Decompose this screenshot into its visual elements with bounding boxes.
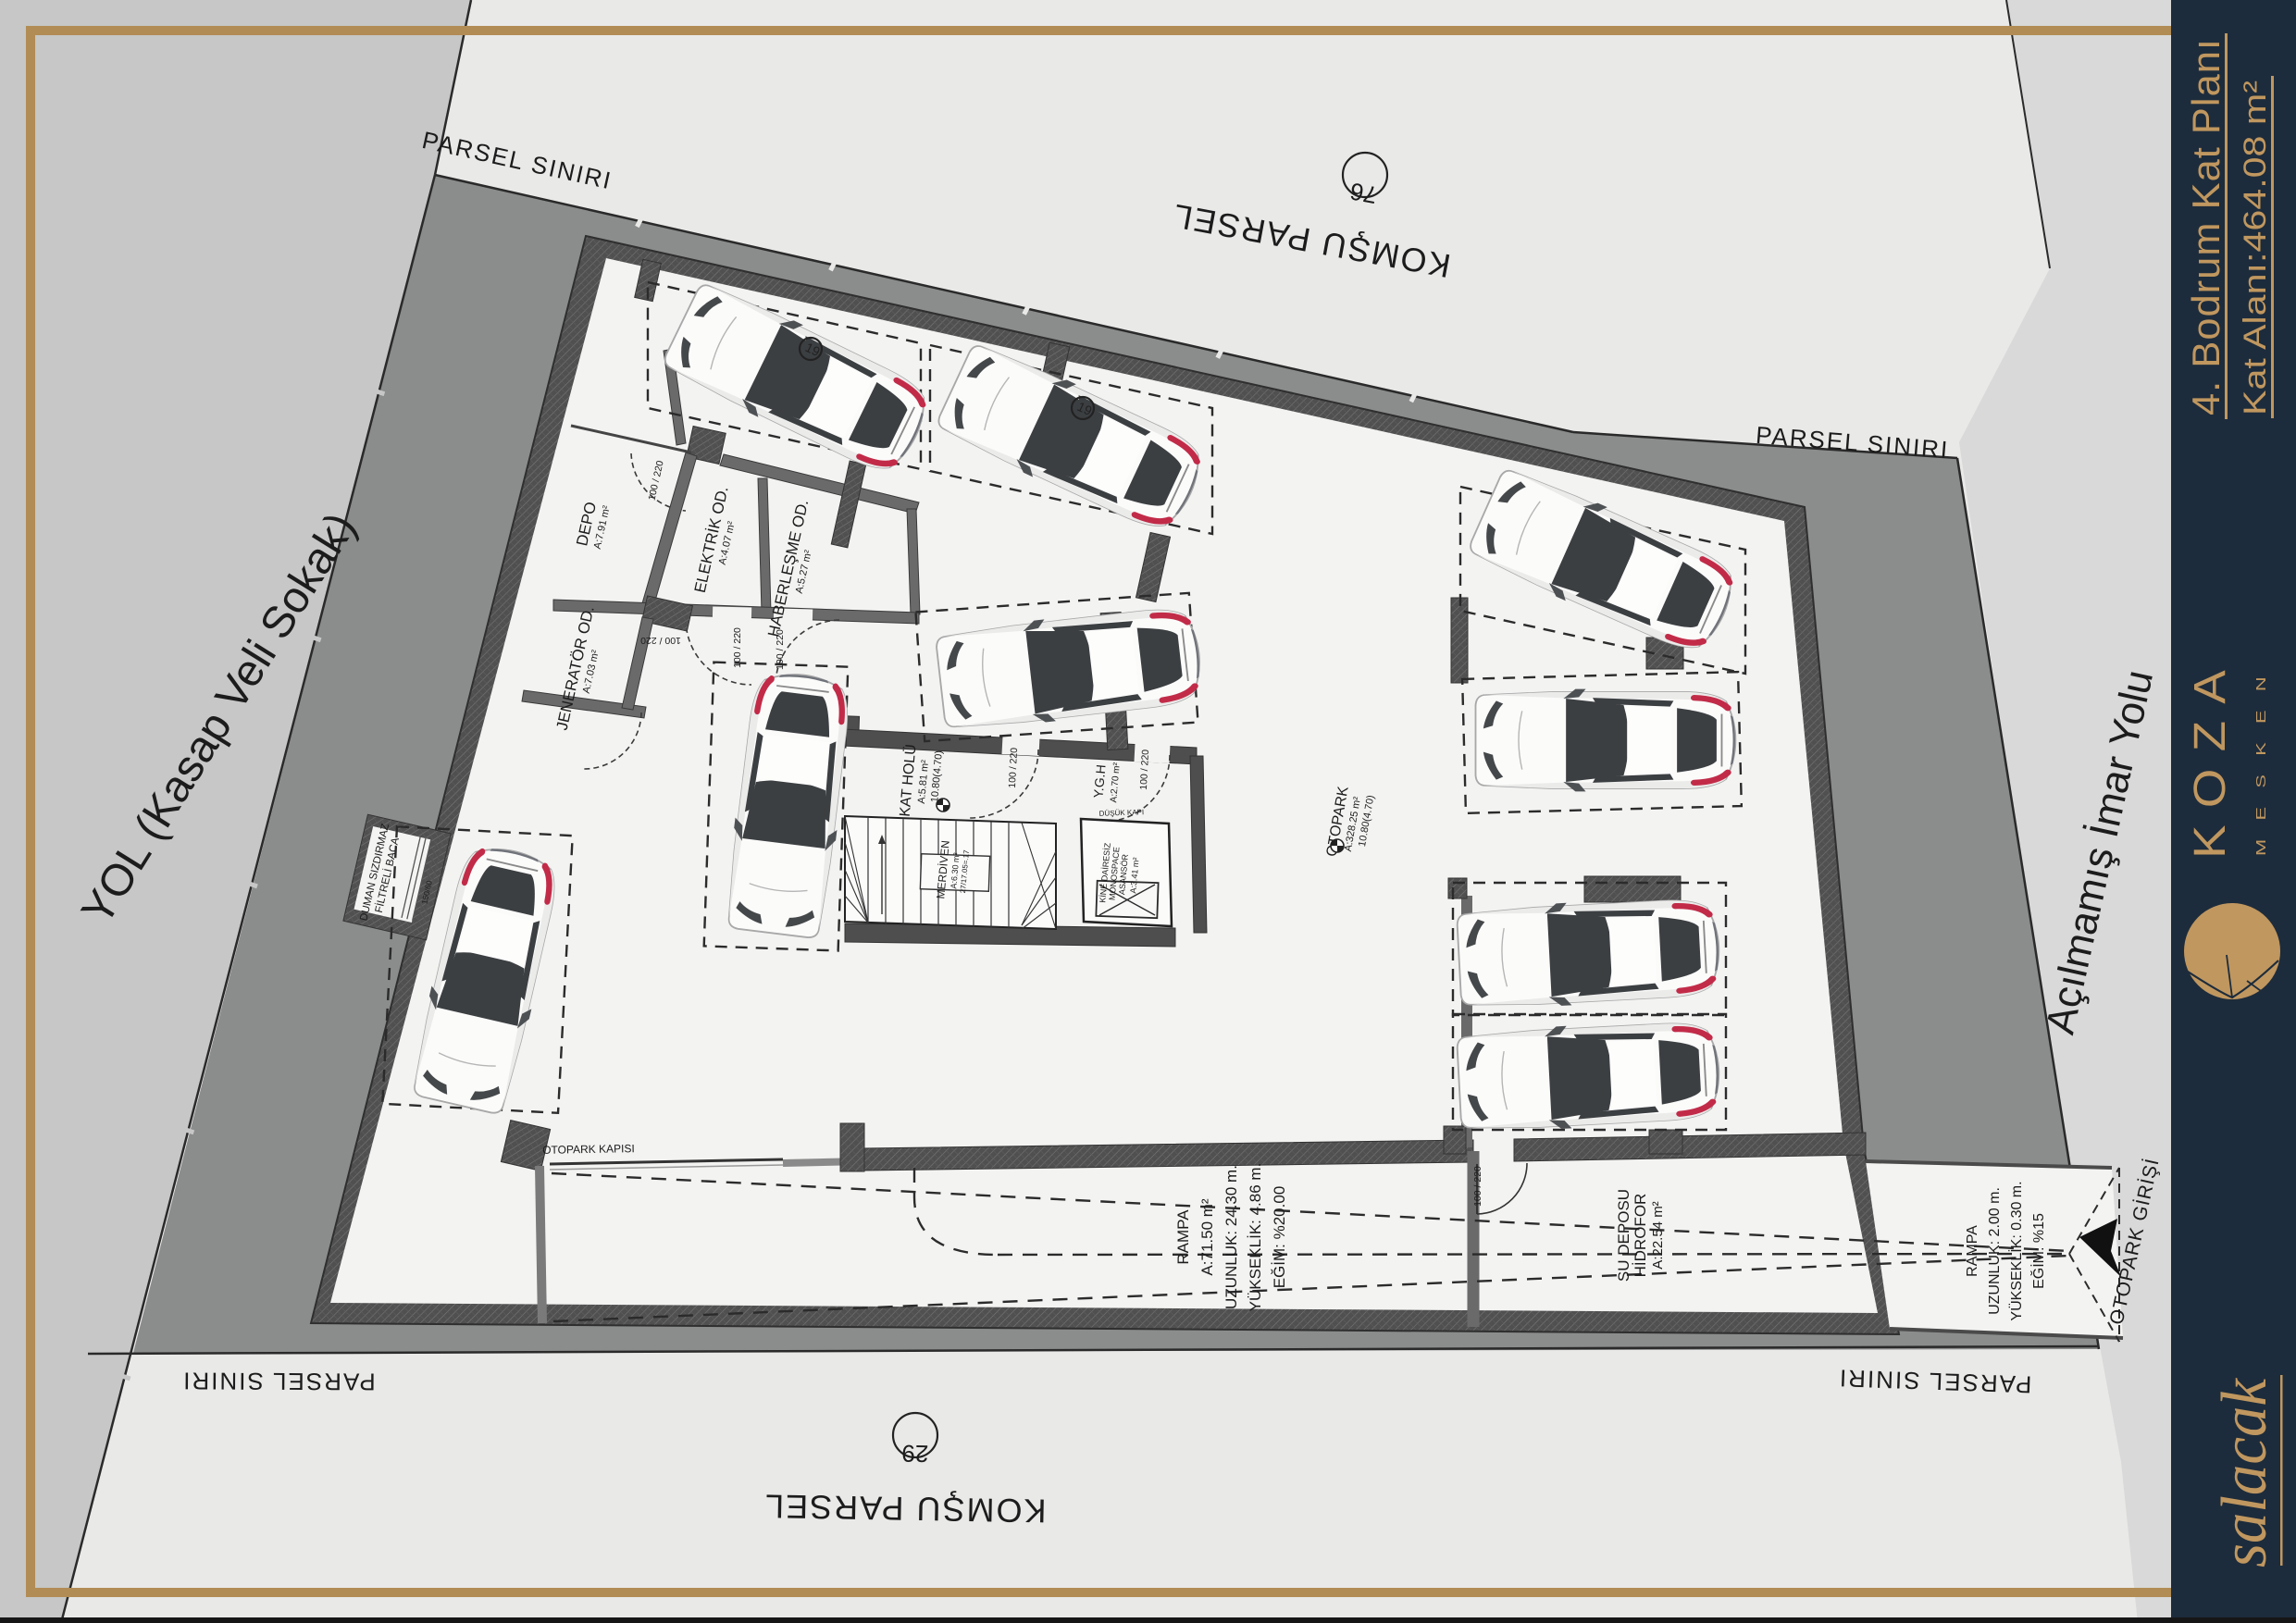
svg-text:KOZA: KOZA [2186, 653, 2235, 859]
svg-text:PARSEL SINIRI: PARSEL SINIRI [181, 1367, 376, 1395]
svg-text:UZUNLUK: 2.00 m.: UZUNLUK: 2.00 m. [1987, 1187, 2003, 1315]
svg-text:UZUNLUK: 24.30 m.: UZUNLUK: 24.30 m. [1222, 1165, 1240, 1309]
svg-text:OTOPARK KAPISI: OTOPARK KAPISI [542, 1142, 635, 1157]
svg-text:KOMŞU PARSEL: KOMŞU PARSEL [763, 1487, 1047, 1530]
svg-text:100 / 220: 100 / 220 [640, 635, 681, 646]
svg-text:YÜKSEKLİK: 0.30 m.: YÜKSEKLİK: 0.30 m. [2007, 1181, 2025, 1320]
svg-text:MESKEN: MESKEN [2253, 658, 2269, 856]
svg-text:YÜKSEKLİK: 4.86 m.: YÜKSEKLİK: 4.86 m. [1247, 1163, 1264, 1312]
svg-text:EĞİM: %15: EĞİM: %15 [2029, 1213, 2047, 1289]
svg-text:SU DEPOSU: SU DEPOSU [1615, 1189, 1632, 1282]
svg-text:salacak: salacak [2209, 1377, 2280, 1567]
svg-text:EĞİM: %20.00: EĞİM: %20.00 [1271, 1186, 1288, 1289]
svg-text:29: 29 [901, 1440, 928, 1468]
svg-text:A:71.50 m²: A:71.50 m² [1198, 1198, 1216, 1275]
svg-text:4. Bodrum Kat Planı: 4. Bodrum Kat Planı [2184, 38, 2228, 415]
svg-text:Y.G.H: Y.G.H [1090, 764, 1108, 799]
svg-text:100 / 220: 100 / 220 [1007, 748, 1020, 789]
svg-text:A:22.54 m²: A:22.54 m² [1650, 1201, 1666, 1269]
svg-text:Kat Alanı:464.08 m²: Kat Alanı:464.08 m² [2238, 81, 2273, 415]
svg-text:RAMPA: RAMPA [1965, 1225, 1980, 1277]
svg-text:100 / 220: 100 / 220 [732, 627, 743, 668]
svg-text:HİDROFOR: HİDROFOR [1632, 1194, 1649, 1278]
svg-text:100 / 220: 100 / 220 [1472, 1166, 1483, 1207]
svg-text:RAMPA: RAMPA [1174, 1209, 1192, 1265]
svg-text:76: 76 [1347, 177, 1379, 209]
svg-text:DÜŞÜK KAPI: DÜŞÜK KAPI [1099, 808, 1145, 818]
svg-text:100 / 220: 100 / 220 [1138, 750, 1151, 791]
svg-text:100 / 220: 100 / 220 [775, 629, 786, 670]
